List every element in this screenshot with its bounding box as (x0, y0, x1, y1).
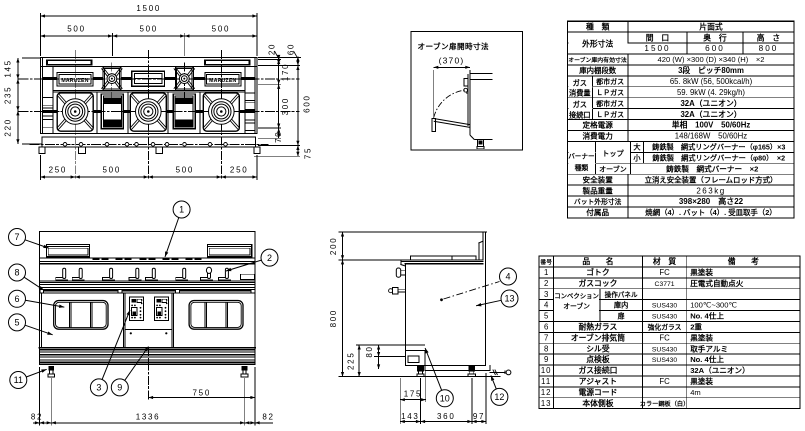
svg-text:7: 7 (544, 333, 548, 342)
svg-text:170: 170 (281, 63, 290, 81)
svg-text:500: 500 (139, 24, 157, 33)
svg-text:235: 235 (4, 86, 13, 104)
svg-text:600: 600 (303, 94, 312, 112)
svg-text:FC: FC (659, 333, 670, 342)
svg-text:SUS430: SUS430 (652, 346, 678, 353)
svg-text:都市ガス: 都市ガス (595, 99, 624, 108)
svg-text:MARUZEN: MARUZEN (209, 78, 236, 84)
svg-text:60: 60 (287, 43, 296, 55)
svg-text:都市ガス: 都市ガス (595, 77, 624, 86)
svg-text:82: 82 (262, 413, 274, 422)
svg-text:12: 12 (494, 392, 504, 402)
svg-text:200: 200 (329, 237, 338, 255)
svg-text:10: 10 (440, 394, 450, 404)
svg-text:5: 5 (544, 312, 549, 321)
svg-text:単相 100V 50/60Hz: 単相 100V 50/60Hz (672, 120, 751, 130)
svg-text:32A（ユニオン）: 32A（ユニオン） (680, 98, 741, 108)
svg-text:番号: 番号 (539, 258, 552, 266)
svg-text:300: 300 (281, 97, 290, 115)
svg-text:1336: 1336 (136, 413, 161, 422)
svg-text:9: 9 (117, 383, 122, 393)
svg-text:ガス: ガス (573, 78, 587, 87)
svg-text:13: 13 (504, 294, 514, 304)
svg-text:外形寸法: 外形寸法 (581, 38, 613, 48)
svg-text:750: 750 (193, 388, 211, 397)
svg-text:7: 7 (14, 232, 19, 242)
svg-text:75: 75 (304, 147, 313, 159)
svg-text:消費量: 消費量 (569, 89, 591, 98)
svg-text:143: 143 (401, 412, 419, 421)
svg-text:82: 82 (31, 413, 43, 422)
svg-text:8: 8 (14, 268, 19, 278)
svg-text:4: 4 (544, 301, 549, 310)
svg-text:13: 13 (541, 399, 552, 408)
svg-text:11: 11 (14, 375, 23, 385)
svg-text:庫内: 庫内 (614, 301, 628, 310)
svg-text:8: 8 (544, 344, 548, 353)
svg-text:11: 11 (541, 377, 551, 386)
svg-text:アジャスト: アジャスト (579, 377, 617, 386)
svg-text:ガスコック: ガスコック (578, 278, 617, 288)
svg-text:焼網（4）. バット（4）. 受皿取手（2）: 焼網（4）. バット（4）. 受皿取手（2） (645, 208, 776, 217)
svg-text:種類: 種類 (575, 163, 589, 172)
svg-text:操作パネル: 操作パネル (605, 290, 638, 299)
svg-text:(370): (370) (439, 56, 465, 66)
svg-text:立消え安全装置（フレームロッド方式）: 立消え安全装置（フレームロッド方式） (645, 175, 778, 184)
svg-text:取手アルミ: 取手アルミ (690, 343, 728, 353)
svg-text:奥 行: 奥 行 (702, 32, 727, 42)
svg-text:オーブン: オーブン (563, 301, 590, 310)
svg-text:800: 800 (759, 44, 779, 53)
svg-text:C3771: C3771 (655, 281, 675, 288)
svg-text:ＬＰガス: ＬＰガス (596, 110, 624, 119)
svg-text:145: 145 (4, 59, 13, 77)
svg-text:庫内棚段数: 庫内棚段数 (579, 66, 617, 75)
svg-text:225: 225 (347, 352, 356, 370)
svg-text:扉: 扉 (617, 312, 624, 321)
svg-text:カラー鋼板（白）: カラー鋼板（白） (640, 400, 690, 408)
svg-text:ＬＰガス: ＬＰガス (596, 88, 624, 97)
svg-text:220: 220 (4, 118, 13, 136)
svg-text:トップ: トップ (602, 149, 624, 158)
svg-text:9: 9 (544, 355, 548, 364)
svg-text:接続口: 接続口 (569, 110, 591, 119)
svg-text:黒塗装: 黒塗装 (690, 267, 713, 277)
svg-text:点検板: 点検板 (586, 354, 610, 364)
svg-text:250: 250 (49, 165, 67, 174)
svg-text:種 類: 種 類 (586, 21, 610, 31)
svg-text:1500: 1500 (136, 4, 161, 13)
svg-text:3: 3 (544, 290, 548, 299)
svg-text:250: 250 (230, 165, 248, 174)
svg-text:6: 6 (544, 323, 548, 332)
svg-text:鋳鉄製 網式バーナー ×2: 鋳鉄製 網式バーナー ×2 (665, 163, 758, 173)
svg-text:電源コード: 電源コード (578, 387, 617, 397)
svg-text:2重: 2重 (690, 322, 702, 332)
svg-text:SUS430: SUS430 (652, 314, 678, 321)
svg-text:148/168W 50/60Hz: 148/168W 50/60Hz (675, 132, 747, 141)
svg-text:備 考: 備 考 (728, 256, 759, 266)
svg-text:3: 3 (96, 383, 101, 393)
svg-text:500: 500 (212, 24, 230, 33)
svg-text:1: 1 (179, 205, 184, 215)
svg-text:耐熱ガラス: 耐熱ガラス (579, 322, 618, 332)
svg-text:製品重量: 製品重量 (582, 185, 614, 195)
svg-text:500: 500 (176, 165, 194, 174)
svg-text:360: 360 (437, 412, 455, 421)
svg-text:バーナー: バーナー (568, 153, 595, 161)
svg-text:70: 70 (274, 131, 283, 143)
svg-text:100℃~300℃: 100℃~300℃ (690, 301, 737, 310)
svg-text:ゴトク: ゴトク (586, 267, 610, 277)
svg-text:黒塗装: 黒塗装 (690, 376, 713, 386)
svg-text:65. 8kW (56, 500kcal/h): 65. 8kW (56, 500kcal/h) (670, 77, 753, 86)
svg-text:1500: 1500 (644, 44, 670, 53)
svg-text:97: 97 (473, 412, 485, 421)
svg-text:10: 10 (541, 366, 552, 375)
svg-text:80: 80 (365, 345, 374, 357)
svg-text:バット外形寸法: バット外形寸法 (574, 197, 622, 206)
svg-text:MARUZEN: MARUZEN (61, 78, 88, 84)
svg-text:間 口: 間 口 (646, 33, 669, 42)
svg-text:1: 1 (544, 268, 548, 277)
svg-text:32A（ユニオン）: 32A（ユニオン） (690, 365, 750, 375)
svg-text:オーブン扉開時寸法: オーブン扉開時寸法 (418, 41, 490, 51)
svg-text:付属品: 付属品 (586, 207, 609, 217)
svg-text:12: 12 (541, 388, 552, 397)
svg-text:59. 9kW (4. 29kg/h): 59. 9kW (4. 29kg/h) (677, 88, 745, 97)
svg-text:SUS430: SUS430 (652, 303, 678, 310)
svg-text:黒塗装: 黒塗装 (690, 332, 713, 342)
svg-text:FC: FC (659, 377, 670, 386)
svg-text:4: 4 (505, 272, 510, 282)
svg-text:No. 4仕上: No. 4仕上 (690, 311, 724, 321)
svg-text:2: 2 (267, 253, 272, 263)
svg-text:圧電式自動点火: 圧電式自動点火 (690, 278, 744, 288)
svg-text:20: 20 (268, 43, 277, 55)
svg-text:SUS430: SUS430 (652, 357, 678, 364)
svg-text:消費電力: 消費電力 (583, 131, 614, 141)
svg-text:鋳鉄製 網式リングバーナー（φ80） ×2: 鋳鉄製 網式リングバーナー（φ80） ×2 (651, 153, 785, 162)
svg-text:材 質: 材 質 (652, 256, 677, 266)
svg-text:ガス: ガス (573, 100, 587, 109)
svg-text:398×280 高さ22: 398×280 高さ22 (679, 196, 744, 206)
svg-text:鋳鉄製 網式リングバーナー（φ165）×3: 鋳鉄製 網式リングバーナー（φ165）×3 (651, 143, 785, 152)
svg-text:強化ガラス: 強化ガラス (648, 323, 682, 332)
svg-text:500: 500 (67, 24, 85, 33)
svg-text:ガス接続口: ガス接続口 (578, 365, 617, 375)
svg-text:500: 500 (103, 165, 121, 174)
svg-text:2: 2 (544, 279, 548, 288)
svg-text:高 さ: 高 さ (757, 32, 780, 42)
svg-text:大: 大 (633, 143, 641, 152)
svg-text:安全装置: 安全装置 (583, 174, 614, 184)
svg-text:32A（ユニオン）: 32A（ユニオン） (680, 109, 741, 119)
svg-text:定格電源: 定格電源 (583, 120, 614, 130)
svg-text:品 名: 品 名 (582, 256, 613, 266)
svg-text:オーブン: オーブン (599, 164, 627, 173)
svg-text:175: 175 (404, 390, 422, 399)
svg-text:シル受: シル受 (586, 343, 610, 353)
svg-text:4m: 4m (690, 388, 701, 397)
svg-text:オーブン排気筒: オーブン排気筒 (571, 332, 625, 342)
svg-text:小: 小 (632, 153, 641, 162)
svg-text:オーブン庫内有効寸法: オーブン庫内有効寸法 (568, 56, 627, 64)
svg-text:6: 6 (14, 294, 19, 304)
svg-text:本体側板: 本体側板 (582, 398, 613, 408)
svg-text:3段 ピッチ80mm: 3段 ピッチ80mm (678, 65, 744, 75)
svg-text:800: 800 (329, 309, 338, 327)
svg-text:420 (W) ×300 (D) ×340 (H) ×2: 420 (W) ×300 (D) ×340 (H) ×2 (658, 55, 765, 64)
svg-text:600: 600 (705, 44, 725, 53)
svg-text:FC: FC (659, 268, 670, 277)
svg-text:No. 4仕上: No. 4仕上 (690, 354, 724, 364)
svg-text:片面式: 片面式 (699, 21, 723, 31)
svg-text:コンベクション: コンベクション (554, 291, 599, 300)
svg-text:263kg: 263kg (696, 186, 725, 195)
svg-text:5: 5 (14, 318, 19, 328)
